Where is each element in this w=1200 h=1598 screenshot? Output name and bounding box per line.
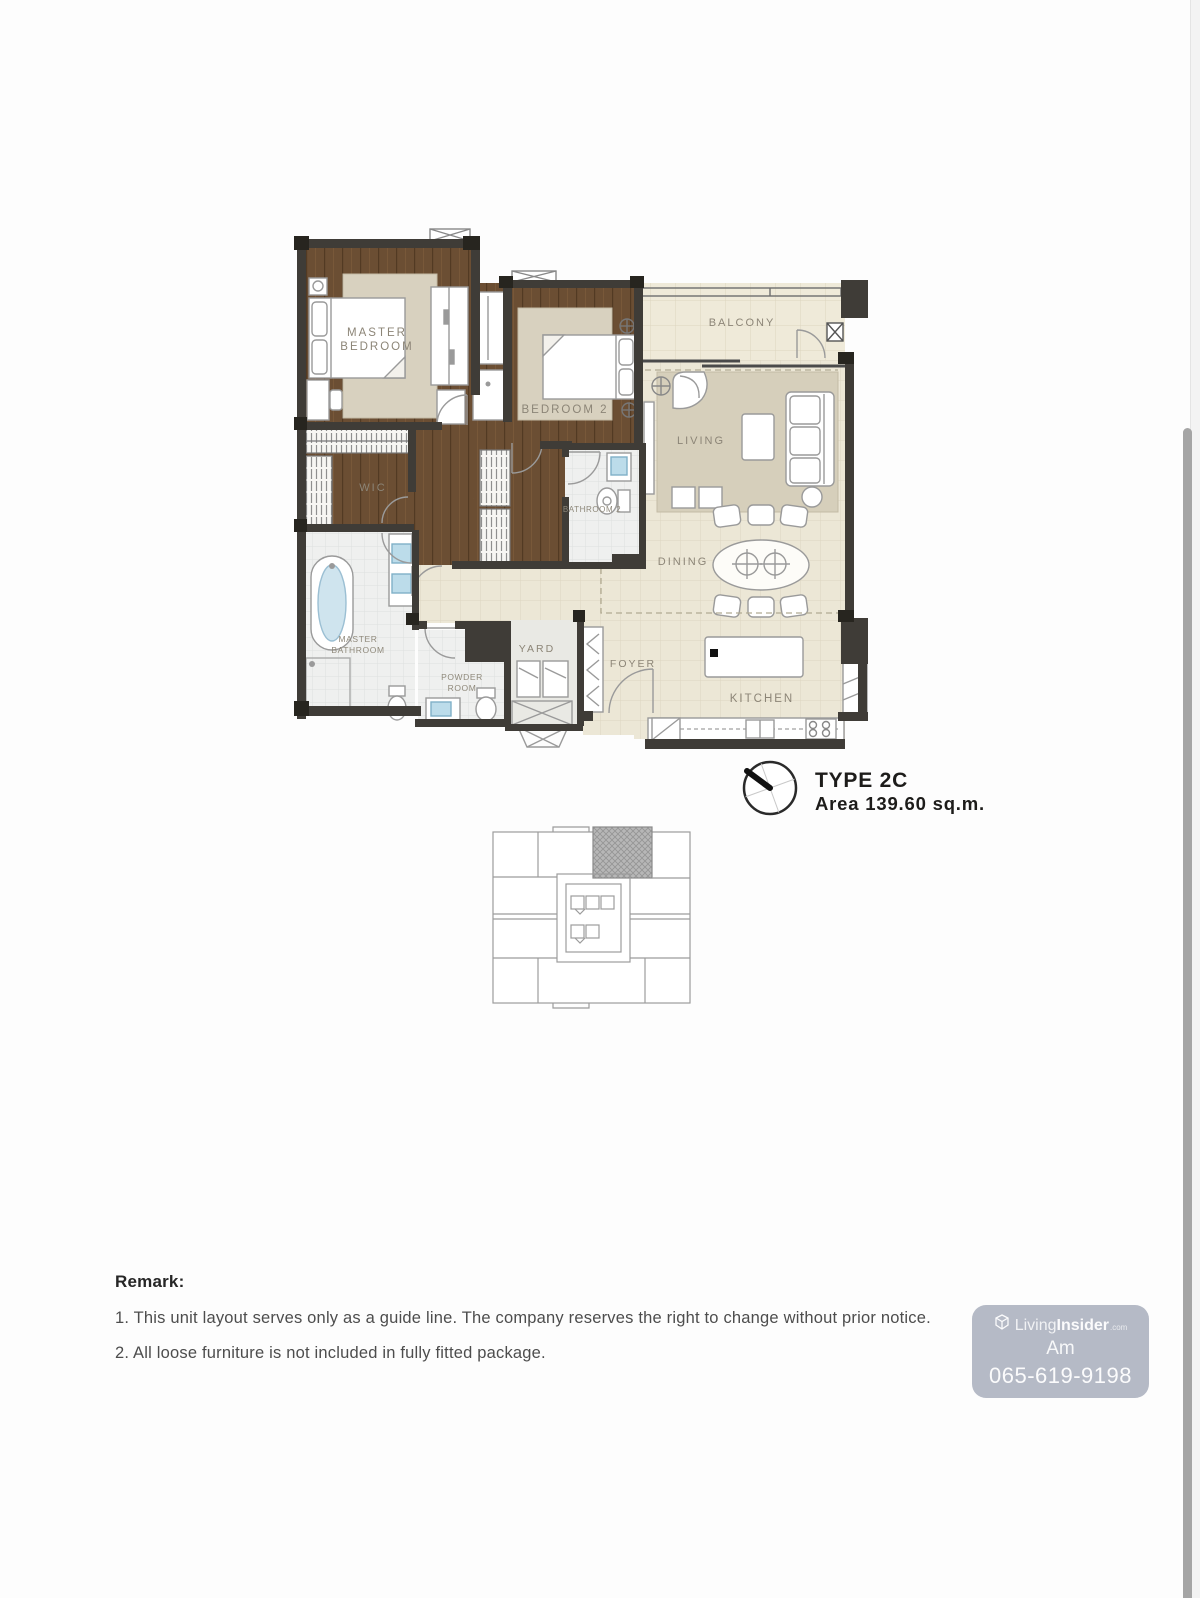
room-label-master-bedroom-2: BEDROOM [340,341,413,353]
room-label-balcony: BALCONY [709,317,776,329]
room-label-master-bathroom-2: BATHROOM [331,645,384,655]
dining-table [713,504,809,617]
watermark-brand: LivingInsider.com [994,1314,1128,1335]
room-label-powder-room-2: ROOM [448,683,477,693]
watermark-agent-name: Am [1046,1338,1075,1360]
unit-area-label: Area 139.60 sq.m. [815,793,985,814]
watermark-phone: 065-619-9198 [989,1363,1132,1389]
room-label-foyer: FOYER [610,658,656,670]
remark-item-2: 2. All loose furniture is not included i… [115,1344,935,1363]
room-label-living: LIVING [677,435,725,447]
north-compass-icon [737,755,804,822]
brand-suffix-text: .com [1110,1323,1127,1332]
remark-item-1: 1. This unit layout serves only as a gui… [115,1309,935,1328]
room-label-dining: DINING [658,556,709,568]
scrollbar-thumb[interactable] [1183,428,1192,1598]
room-label-kitchen: KITCHEN [730,693,794,705]
room-label-yard: YARD [519,643,555,655]
brand-bold-text: Insider [1057,1317,1109,1335]
watermark-badge: LivingInsider.com Am 065-619-9198 [972,1305,1149,1398]
brand-light-text: Living [1015,1317,1057,1335]
key-plan-highlighted-unit [593,827,652,878]
floor-plan-page: MASTER BEDROOM BEDROOM 2 BALCONY LIVING … [0,0,1200,1598]
remark-section: Remark: 1. This unit layout serves only … [115,1272,935,1379]
room-label-master-bathroom-1: MASTER [338,634,377,644]
room-label-master-bedroom-1: MASTER [347,327,407,339]
room-label-wic: WIC [359,482,386,494]
key-plan [493,827,690,1008]
room-label-bedroom-2: BEDROOM 2 [521,404,608,416]
bedroom2-bed [543,335,635,399]
unit-type-label: TYPE 2C [815,769,908,792]
livinginsider-logo-icon [994,1314,1010,1330]
master-wardrobe [431,287,468,424]
room-label-powder-room-1: POWDER [441,672,483,682]
remark-heading: Remark: [115,1272,935,1292]
room-label-bathroom-2: BATHROOM 2 [563,505,621,514]
